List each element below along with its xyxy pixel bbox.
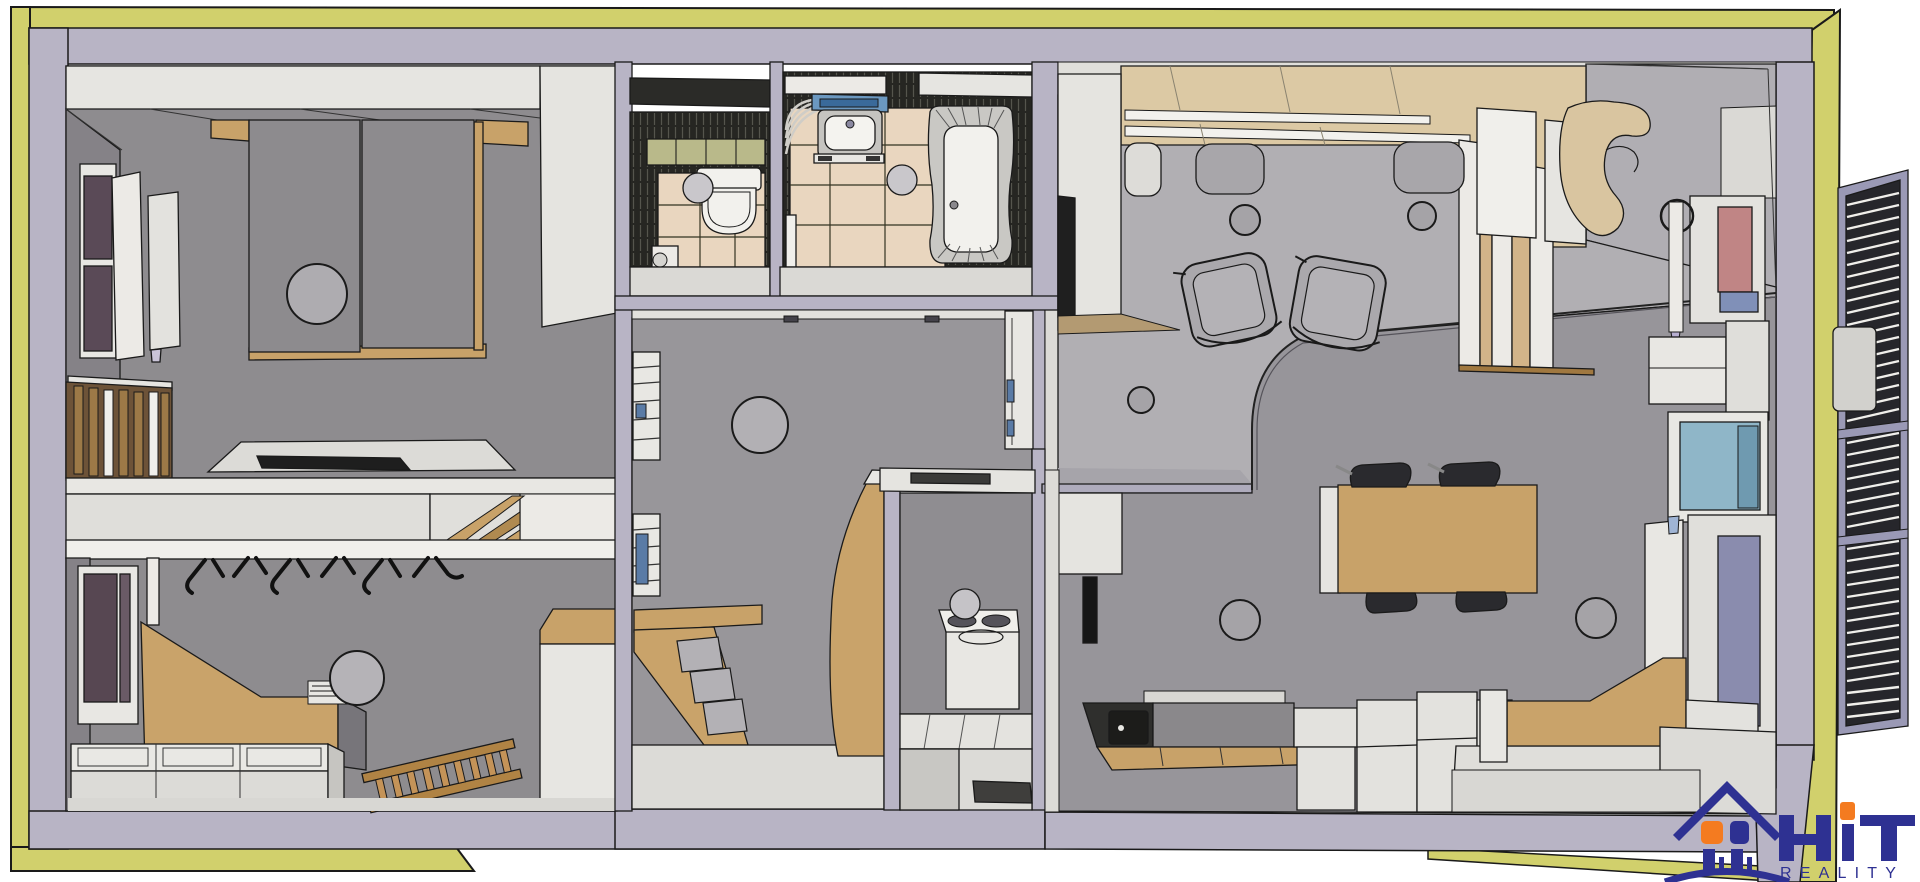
svg-text:REALITY: REALITY — [1780, 865, 1904, 882]
